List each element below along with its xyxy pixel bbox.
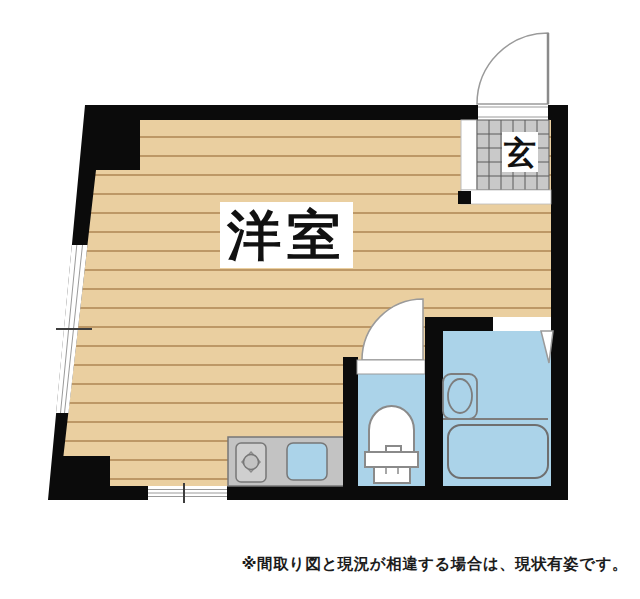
room-label: 洋室 <box>226 205 347 265</box>
floor-plan-drawing: 玄 <box>0 0 640 599</box>
bathtub-icon <box>448 425 548 478</box>
entrance-step-post <box>458 191 471 204</box>
bathroom-sink-icon <box>448 379 472 413</box>
stove-burner-ring-icon <box>244 455 259 470</box>
bathroom-doorway-opening <box>493 317 551 331</box>
entrance-step <box>461 190 551 204</box>
toilet-room-left-wall <box>343 357 358 500</box>
entrance-label: 玄 <box>503 135 536 171</box>
disclaimer-text: ※間取り図と現況が相違する場合は、現状有姿です。 <box>242 554 628 575</box>
toilet-door-leaf <box>357 360 425 374</box>
entrance-door-swing-icon <box>477 33 548 104</box>
kitchen-sink <box>287 443 327 480</box>
entrance-side-frame <box>461 120 477 190</box>
bathroom-left-wall <box>425 317 443 500</box>
floor-plan-page: 玄 <box>0 0 640 599</box>
entrance-doorway-opening <box>478 104 548 120</box>
bottom-window <box>148 483 227 503</box>
bathroom-top-wall <box>425 317 495 331</box>
wall-pillar <box>56 456 110 488</box>
